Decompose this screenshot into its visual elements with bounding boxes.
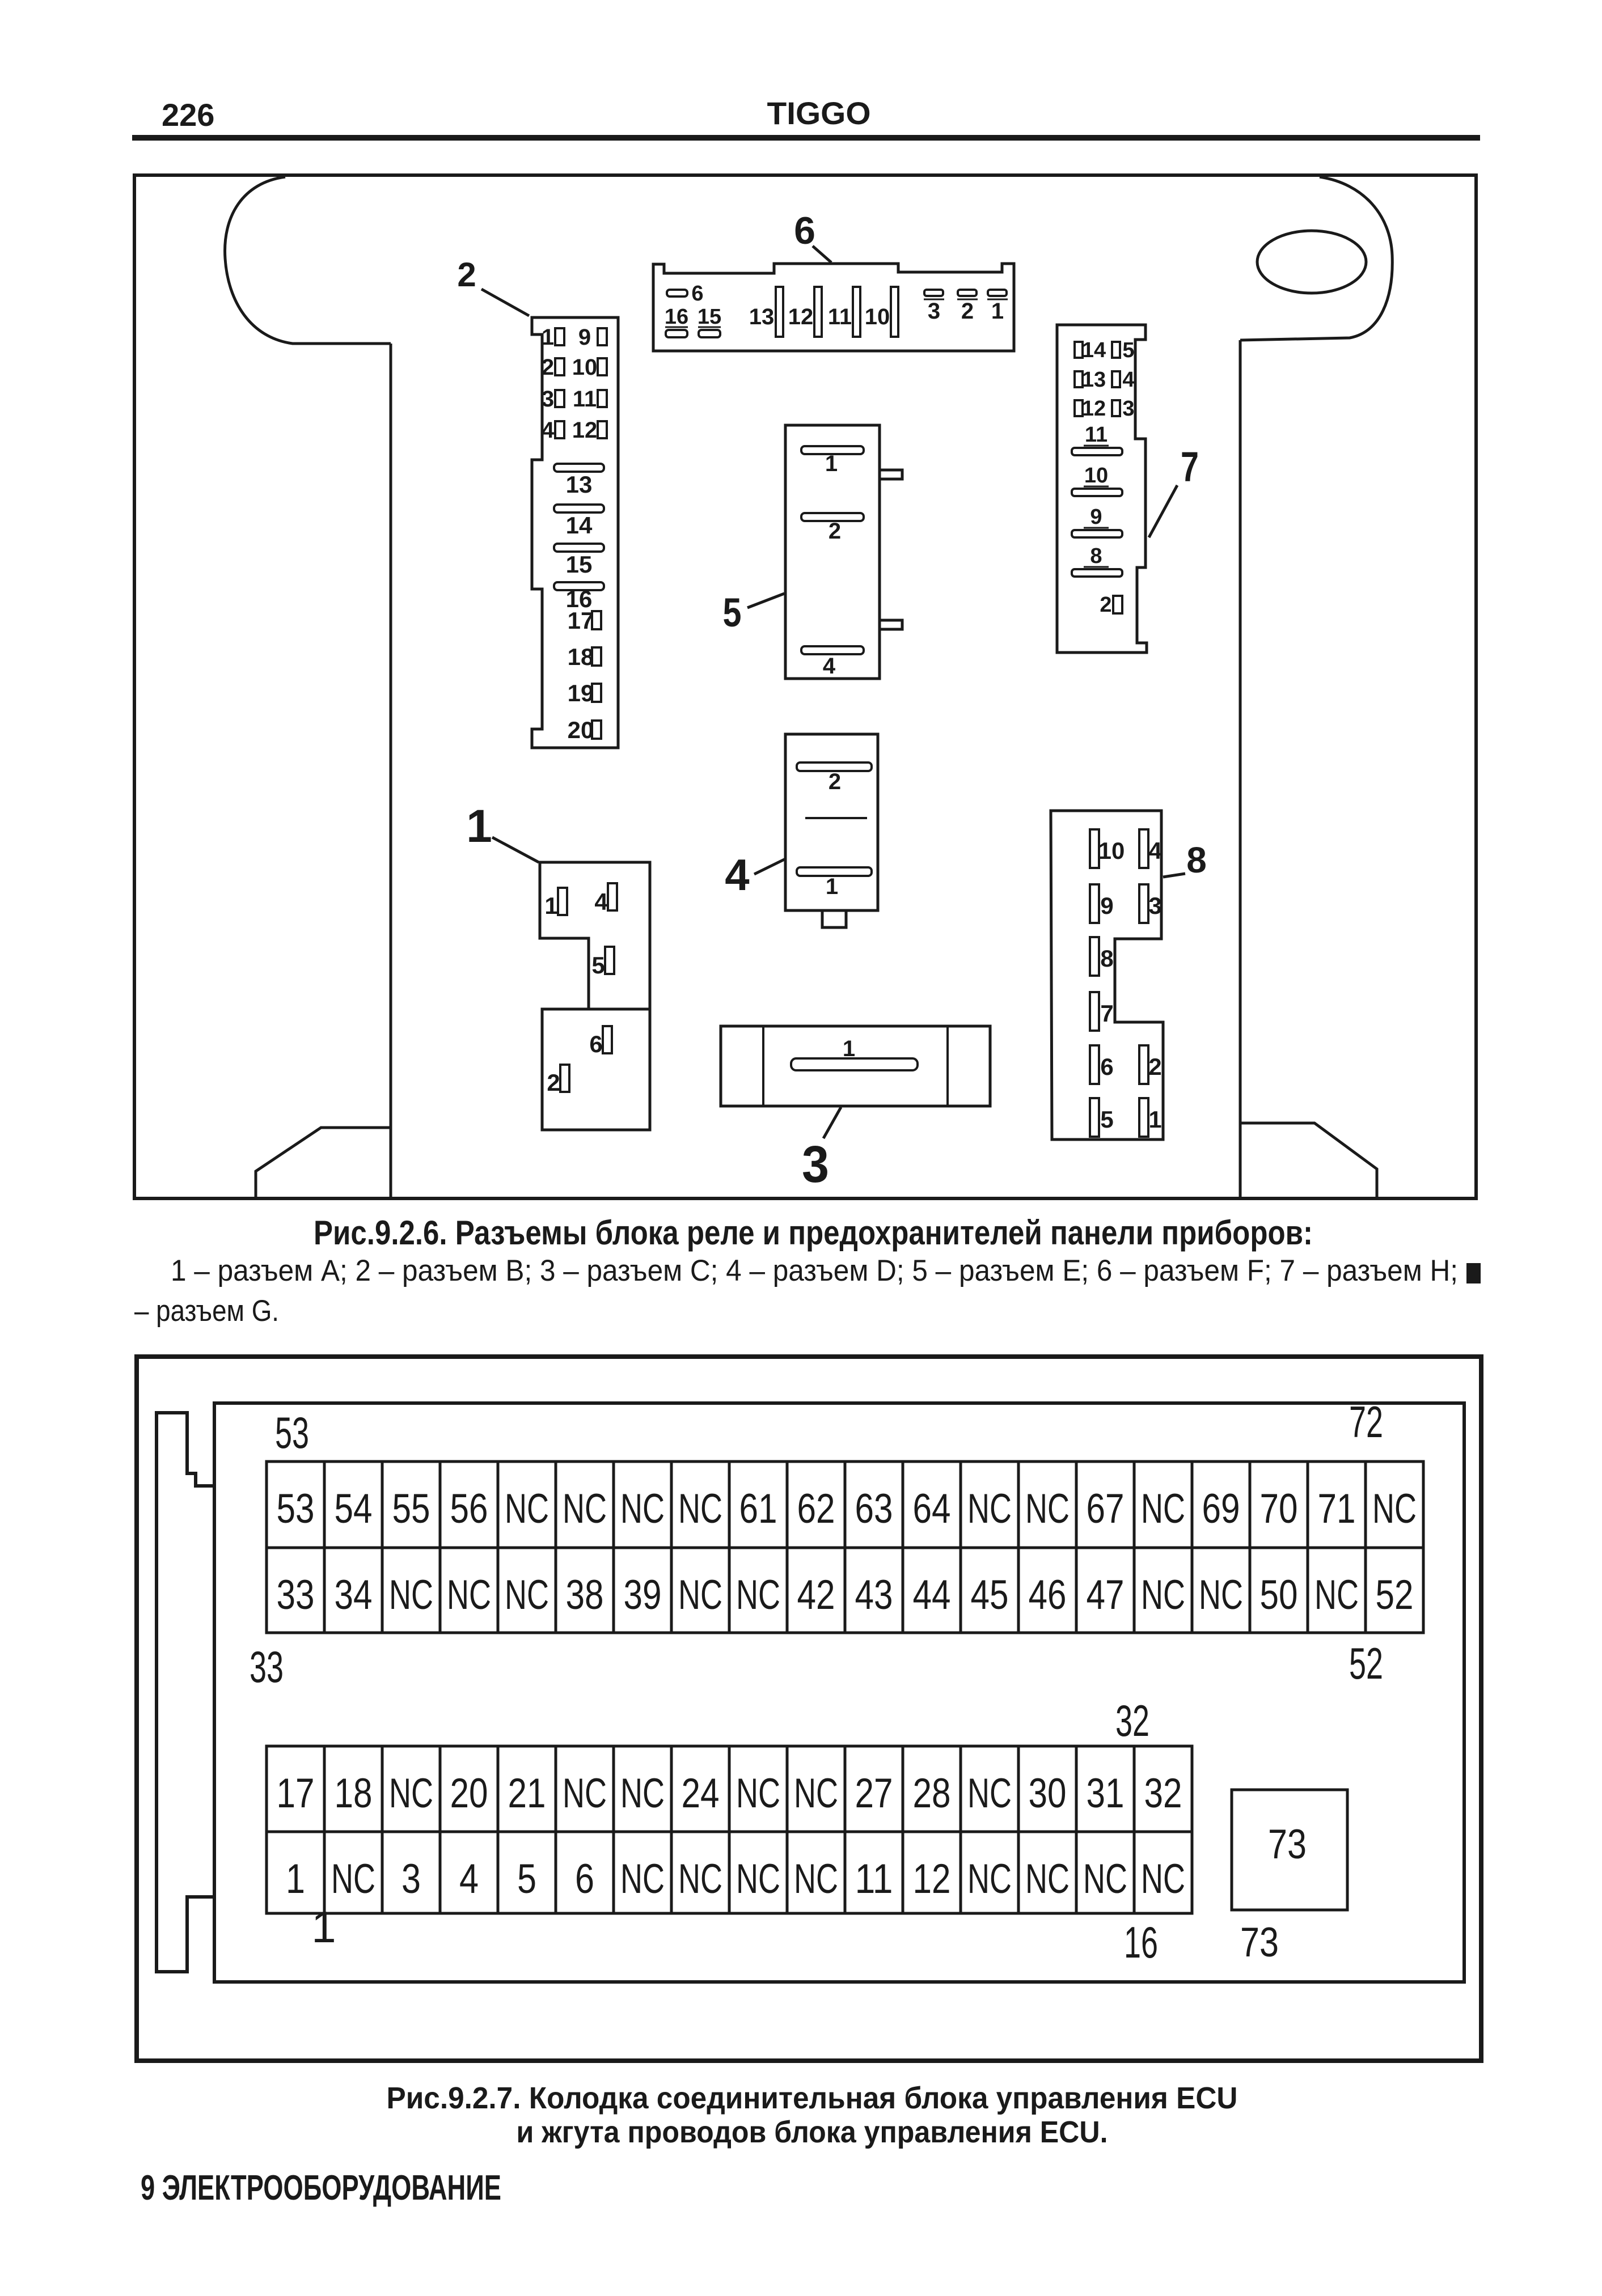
svg-text:NC: NC xyxy=(1083,1856,1127,1902)
svg-text:2: 2 xyxy=(457,256,476,294)
svg-text:4: 4 xyxy=(459,1856,479,1902)
svg-text:10: 10 xyxy=(1098,837,1125,864)
svg-text:32: 32 xyxy=(1115,1696,1149,1746)
svg-text:NC: NC xyxy=(1141,1856,1185,1902)
svg-text:5: 5 xyxy=(1100,1106,1113,1133)
svg-text:19: 19 xyxy=(568,680,594,706)
svg-text:NC: NC xyxy=(505,1572,549,1618)
svg-text:3: 3 xyxy=(928,299,940,324)
svg-text:NC: NC xyxy=(620,1770,665,1816)
svg-text:50: 50 xyxy=(1260,1572,1298,1618)
svg-text:10: 10 xyxy=(1084,464,1108,488)
svg-text:2: 2 xyxy=(542,355,554,380)
svg-text:3: 3 xyxy=(542,387,554,412)
svg-text:2: 2 xyxy=(547,1069,560,1096)
svg-text:Рис.9.2.6. Разъемы блока реле: Рис.9.2.6. Разъемы блока реле и предохра… xyxy=(314,1214,1313,1252)
svg-text:NC: NC xyxy=(1025,1486,1070,1532)
svg-text:56: 56 xyxy=(450,1486,488,1532)
svg-text:33: 33 xyxy=(250,1642,284,1692)
svg-text:4: 4 xyxy=(1122,368,1134,392)
svg-text:11: 11 xyxy=(828,304,852,329)
svg-text:Рис.9.2.7. Колодка соединител: Рис.9.2.7. Колодка соединительная блока … xyxy=(387,2081,1238,2115)
svg-text:NC: NC xyxy=(1025,1856,1070,1902)
svg-text:63: 63 xyxy=(855,1486,893,1532)
svg-text:20: 20 xyxy=(568,717,594,743)
svg-text:9 ЭЛЕКТРООБОРУДОВАНИЕ: 9 ЭЛЕКТРООБОРУДОВАНИЕ xyxy=(141,2168,501,2208)
svg-text:– разъем G.: – разъем G. xyxy=(134,1294,279,1328)
svg-text:30: 30 xyxy=(1029,1770,1067,1816)
svg-text:6: 6 xyxy=(1100,1053,1113,1080)
svg-text:2: 2 xyxy=(961,299,974,324)
svg-text:15: 15 xyxy=(698,305,721,329)
svg-text:44: 44 xyxy=(913,1572,951,1618)
svg-text:72: 72 xyxy=(1349,1397,1383,1447)
svg-text:71: 71 xyxy=(1318,1486,1356,1532)
svg-text:NC: NC xyxy=(736,1856,780,1902)
svg-text:9: 9 xyxy=(1100,892,1113,919)
svg-text:4: 4 xyxy=(542,418,555,443)
svg-text:73: 73 xyxy=(1268,1821,1307,1867)
svg-text:42: 42 xyxy=(797,1572,835,1618)
svg-text:20: 20 xyxy=(450,1770,488,1816)
svg-text:73: 73 xyxy=(1240,1920,1279,1965)
svg-text:NC: NC xyxy=(1199,1572,1243,1618)
svg-text:NC: NC xyxy=(389,1572,433,1618)
svg-text:1: 1 xyxy=(544,892,557,919)
svg-text:52: 52 xyxy=(1349,1638,1383,1688)
svg-text:18: 18 xyxy=(335,1770,373,1816)
svg-text:12: 12 xyxy=(1082,397,1106,421)
svg-text:17: 17 xyxy=(568,607,594,634)
svg-text:2: 2 xyxy=(1148,1053,1161,1080)
svg-text:16: 16 xyxy=(665,305,688,329)
svg-text:6: 6 xyxy=(691,282,703,306)
svg-text:NC: NC xyxy=(736,1770,780,1816)
svg-text:13: 13 xyxy=(749,304,775,329)
svg-text:3: 3 xyxy=(802,1136,829,1193)
svg-text:3: 3 xyxy=(1148,892,1161,919)
svg-text:53: 53 xyxy=(275,1408,309,1458)
svg-text:43: 43 xyxy=(855,1572,893,1618)
svg-text:11: 11 xyxy=(1085,423,1108,447)
svg-text:NC: NC xyxy=(794,1856,838,1902)
svg-text:4: 4 xyxy=(594,888,608,915)
svg-text:15: 15 xyxy=(566,551,593,578)
svg-text:67: 67 xyxy=(1087,1486,1125,1532)
svg-text:61: 61 xyxy=(739,1486,777,1532)
svg-text:39: 39 xyxy=(624,1572,662,1618)
svg-text:NC: NC xyxy=(678,1486,722,1532)
svg-text:7: 7 xyxy=(1100,1000,1113,1027)
svg-text:1 – разъем А; 2 – разъем В; 3: 1 – разъем А; 2 – разъем В; 3 – разъем С… xyxy=(171,1254,1458,1287)
svg-text:64: 64 xyxy=(913,1486,951,1532)
svg-text:NC: NC xyxy=(331,1856,375,1902)
svg-text:47: 47 xyxy=(1087,1572,1125,1618)
svg-text:11: 11 xyxy=(855,1856,893,1902)
svg-text:NC: NC xyxy=(967,1856,1012,1902)
svg-text:1: 1 xyxy=(466,800,492,852)
svg-text:2: 2 xyxy=(829,769,841,794)
svg-text:27: 27 xyxy=(855,1770,893,1816)
svg-text:8: 8 xyxy=(1090,544,1102,568)
svg-text:9: 9 xyxy=(578,325,591,350)
svg-text:и жгута проводов блока управле: и жгута проводов блока управления ECU. xyxy=(517,2115,1108,2149)
svg-text:34: 34 xyxy=(335,1572,373,1618)
svg-text:38: 38 xyxy=(566,1572,604,1618)
svg-text:33: 33 xyxy=(277,1572,315,1618)
svg-text:69: 69 xyxy=(1202,1486,1240,1532)
svg-text:NC: NC xyxy=(563,1486,607,1532)
svg-text:21: 21 xyxy=(508,1770,546,1816)
svg-text:45: 45 xyxy=(971,1572,1009,1618)
svg-text:NC: NC xyxy=(563,1770,607,1816)
svg-text:55: 55 xyxy=(392,1486,430,1532)
svg-text:16: 16 xyxy=(1124,1917,1158,1967)
svg-text:NC: NC xyxy=(967,1486,1012,1532)
svg-text:NC: NC xyxy=(1372,1486,1417,1532)
svg-text:46: 46 xyxy=(1029,1572,1067,1618)
svg-text:32: 32 xyxy=(1144,1770,1182,1816)
svg-text:5: 5 xyxy=(1122,338,1134,362)
svg-text:1: 1 xyxy=(826,874,838,899)
svg-text:62: 62 xyxy=(797,1486,835,1532)
svg-text:NC: NC xyxy=(736,1572,780,1618)
svg-text:4: 4 xyxy=(1148,837,1162,864)
svg-text:NC: NC xyxy=(1141,1486,1185,1532)
svg-text:7: 7 xyxy=(1181,443,1199,490)
svg-text:10: 10 xyxy=(865,304,890,329)
svg-text:11: 11 xyxy=(573,387,597,412)
svg-text:6: 6 xyxy=(589,1031,602,1057)
svg-text:4: 4 xyxy=(725,850,749,900)
svg-text:12: 12 xyxy=(572,418,598,443)
svg-text:8: 8 xyxy=(1100,945,1113,972)
svg-text:5: 5 xyxy=(517,1856,536,1902)
svg-text:1: 1 xyxy=(991,299,1004,324)
svg-text:8: 8 xyxy=(1186,840,1207,880)
svg-text:5: 5 xyxy=(723,591,742,636)
svg-text:28: 28 xyxy=(913,1770,951,1816)
svg-text:NC: NC xyxy=(620,1856,665,1902)
svg-text:NC: NC xyxy=(794,1770,838,1816)
svg-text:10: 10 xyxy=(572,355,598,380)
svg-text:1: 1 xyxy=(542,325,554,350)
svg-text:4: 4 xyxy=(823,654,836,679)
svg-text:9: 9 xyxy=(1090,505,1102,529)
svg-text:53: 53 xyxy=(277,1486,315,1532)
svg-text:5: 5 xyxy=(591,952,605,978)
svg-text:NC: NC xyxy=(620,1486,665,1532)
svg-text:1: 1 xyxy=(286,1856,305,1902)
svg-text:NC: NC xyxy=(447,1572,491,1618)
svg-text:NC: NC xyxy=(678,1856,722,1902)
svg-text:12: 12 xyxy=(913,1856,951,1902)
svg-text:2: 2 xyxy=(1100,593,1111,617)
svg-text:6: 6 xyxy=(794,209,815,252)
svg-text:14: 14 xyxy=(1082,338,1106,362)
svg-text:3: 3 xyxy=(401,1856,421,1902)
svg-text:NC: NC xyxy=(678,1572,722,1618)
svg-text:13: 13 xyxy=(1082,368,1106,392)
svg-text:31: 31 xyxy=(1087,1770,1125,1816)
svg-text:NC: NC xyxy=(389,1770,433,1816)
svg-text:1: 1 xyxy=(311,1902,336,1952)
svg-text:54: 54 xyxy=(335,1486,373,1532)
svg-text:2: 2 xyxy=(829,519,841,544)
svg-text:1: 1 xyxy=(1148,1106,1161,1133)
svg-text:NC: NC xyxy=(1141,1572,1185,1618)
svg-text:TIGGO: TIGGO xyxy=(767,95,871,131)
svg-text:NC: NC xyxy=(967,1770,1012,1816)
svg-text:226: 226 xyxy=(162,97,214,133)
svg-text:70: 70 xyxy=(1260,1486,1298,1532)
svg-text:18: 18 xyxy=(568,643,594,670)
svg-text:24: 24 xyxy=(682,1770,720,1816)
svg-text:1: 1 xyxy=(825,451,838,476)
svg-text:52: 52 xyxy=(1376,1572,1414,1618)
svg-text:NC: NC xyxy=(1314,1572,1359,1618)
svg-text:NC: NC xyxy=(505,1486,549,1532)
svg-text:12: 12 xyxy=(788,304,814,329)
svg-text:3: 3 xyxy=(1122,397,1134,421)
svg-text:17: 17 xyxy=(277,1770,315,1816)
svg-text:14: 14 xyxy=(566,512,593,539)
svg-text:6: 6 xyxy=(575,1856,594,1902)
svg-text:13: 13 xyxy=(566,471,593,498)
